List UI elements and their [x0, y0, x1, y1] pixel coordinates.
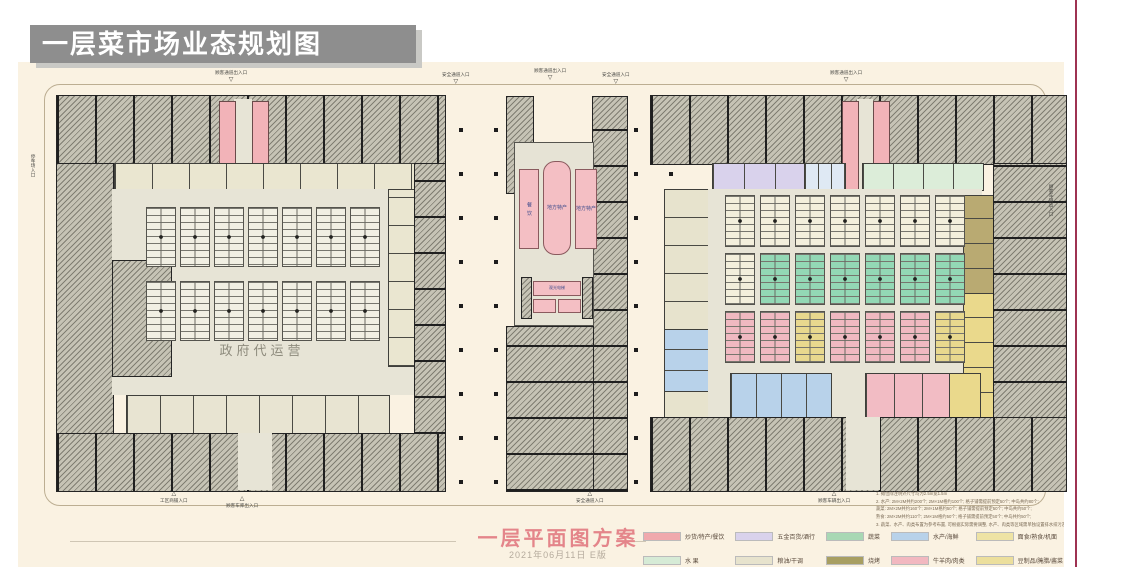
entrance-marker: △顾客车库出入口 — [226, 495, 258, 509]
stall-grid — [900, 253, 930, 305]
entrance-marker: 顾客通道出入口▽ — [215, 70, 247, 84]
stall-grid — [316, 281, 346, 341]
stall-grid — [830, 253, 860, 305]
stall-grid — [865, 311, 895, 363]
stall-grid — [935, 253, 965, 305]
legend-item: 豆制品/腌腊/酱菜 — [976, 556, 1063, 564]
entrance-triangle-icon: ▽ — [442, 78, 470, 86]
entrance-triangle-icon: ▽ — [534, 74, 566, 82]
stall-grid — [248, 207, 278, 267]
legend-item: 面食/熟食/机面 — [976, 532, 1063, 540]
zone-local-specialty-right: 地方特产 — [575, 169, 597, 249]
stall-grid — [725, 253, 755, 305]
legend-item: 粮油/干调 — [735, 556, 815, 564]
stall-grid — [146, 207, 176, 267]
legend-label: 五金百货/酒行 — [777, 532, 815, 541]
entrance-marker: 顾客通道出入口▽ — [534, 68, 566, 82]
zone-seafood-column — [664, 329, 710, 393]
stall-grid — [282, 207, 312, 267]
legend-label: 蔬菜 — [868, 532, 880, 541]
entrance-marker: 安全通道入口▽ — [602, 72, 630, 86]
escalator-icon — [582, 277, 593, 319]
note-line: 1. 摊位除注明外尺寸均为2.5m宽1.5m — [876, 490, 1064, 498]
stall-grid — [795, 311, 825, 363]
stall-grid — [316, 207, 346, 267]
legend-swatch — [735, 556, 773, 565]
zone-local-specialty-center: 地方特产 — [543, 161, 571, 255]
exit-corridor — [238, 433, 272, 490]
stall-grid — [865, 195, 895, 247]
shop-row — [114, 163, 416, 191]
escalator-icon — [521, 277, 532, 319]
stall-grid — [935, 195, 965, 247]
entrance-triangle-icon: ▽ — [215, 76, 247, 84]
legend-column: 五金百货/酒行粮油/干调 — [735, 532, 815, 564]
stall-grid — [248, 281, 278, 341]
stall-grid — [900, 195, 930, 247]
legend-item: 水产/海鲜 — [891, 532, 965, 540]
legend-label: 豆制品/腌腊/酱菜 — [1018, 556, 1063, 565]
atrium-shops-bottom — [506, 326, 594, 492]
note-line: 蔬菜: 2M×2M共约160个; 2M×1M格约50个; 格子铺需提前预定50个… — [876, 505, 1064, 513]
shop-column-right — [388, 189, 416, 367]
zone-small-shops — [804, 163, 846, 191]
legend-item: 五金百货/酒行 — [735, 532, 815, 540]
footer-rule-left — [70, 541, 456, 542]
zone-misc-column — [664, 391, 710, 419]
sightseeing-elevator: 观光电梯 — [533, 281, 581, 296]
stall-grid — [725, 195, 755, 247]
legend-item: 牛羊肉/肉类 — [891, 556, 965, 564]
legend-swatch — [735, 532, 773, 541]
legend-label: 粮油/干调 — [777, 556, 803, 565]
entrance-marker: 安全通道入口▽ — [442, 72, 470, 86]
entrance-triangle-icon: ▽ — [602, 78, 630, 86]
stall-grid — [760, 253, 790, 305]
entrance-marker-side: 顾客车辆出入口 — [1048, 184, 1054, 216]
legend-label: 面食/熟食/机面 — [1018, 532, 1057, 541]
entrance-marker: △安全通道入口 — [576, 490, 604, 504]
stall-grid — [350, 207, 380, 267]
legend-item: 蔬菜 — [826, 532, 880, 540]
zone-hardware-shops — [712, 163, 806, 191]
shop-row-bottom — [126, 395, 390, 435]
legend-column: 水产/海鲜牛羊肉/肉类 — [891, 532, 965, 564]
stall-grid — [725, 311, 755, 363]
stall-grid — [830, 311, 860, 363]
legend-label: 牛羊肉/肉类 — [933, 556, 965, 565]
entrance-triangle-icon: △ — [160, 490, 188, 498]
legend-swatch — [826, 556, 864, 565]
stall-grid — [830, 195, 860, 247]
legend-swatch — [826, 532, 864, 541]
atrium-shops-right — [592, 96, 628, 492]
legend-label: 炒货/特产/餐饮 — [685, 532, 724, 541]
slide: 政府代运营 餐 饮 地方特产 地方特产 观光电梯 — [0, 0, 1134, 567]
legend-swatch — [891, 532, 929, 541]
stall-grid — [146, 281, 176, 341]
legend-item: 水 果 — [643, 556, 724, 564]
entrance-marker-side: 停车场入口 — [30, 154, 36, 177]
zone-fruit-shops — [862, 163, 984, 191]
plan-paper: 政府代运营 餐 饮 地方特产 地方特产 观光电梯 — [18, 62, 1064, 567]
legend-column: 炒货/特产/餐饮水 果 — [643, 532, 724, 564]
legend: 炒货/特产/餐饮水 果五金百货/酒行粮油/干调蔬菜烧烤水产/海鲜牛羊肉/肉类面食… — [643, 532, 1063, 564]
stall-grid — [214, 207, 244, 267]
stall-grid — [760, 311, 790, 363]
legend-swatch — [643, 556, 681, 565]
perimeter-shops-right — [414, 163, 446, 435]
entrance-marker: 顾客通道出入口▽ — [830, 70, 862, 84]
left-building: 政府代运营 — [56, 95, 444, 490]
entrance-marker: △顾客车辆出入口 — [818, 490, 850, 504]
legend-swatch — [976, 556, 1014, 565]
stall-grid — [935, 311, 965, 363]
legend-item: 炒货/特产/餐饮 — [643, 532, 724, 540]
legend-label: 水 果 — [685, 556, 699, 565]
elevator-cab — [533, 299, 556, 313]
entrance-triangle-icon: △ — [226, 495, 258, 503]
legend-item: 烧烤 — [826, 556, 880, 564]
exit-corridor — [846, 417, 880, 490]
stall-grid — [795, 253, 825, 305]
corridor-columns — [459, 98, 463, 484]
legend-label: 水产/海鲜 — [933, 532, 959, 541]
stall-grid — [795, 195, 825, 247]
notes-block: 1. 摊位除注明外尺寸均为2.5m宽1.5m2. 水产: 2M×2M共约200个… — [876, 490, 1064, 530]
plan-title: 一层平面图方案 — [470, 522, 646, 551]
right-building — [650, 95, 1065, 490]
escalator-block: 观光电梯 — [521, 277, 591, 317]
page-title: 一层菜市场业态规划图 — [30, 25, 416, 63]
atrium-lobby: 餐 饮 地方特产 地方特产 观光电梯 — [514, 142, 594, 326]
government-operation-label: 政府代运营 — [152, 340, 372, 359]
note-line: 3. 蔬菜、水产、肉类布置为参考布置, 可根据实际需要调整, 水产、肉类等区域需… — [876, 521, 1064, 529]
entrance-triangle-icon: △ — [818, 490, 850, 498]
legend-column: 面食/熟食/机面豆制品/腌腊/酱菜 — [976, 532, 1063, 564]
stall-grid — [214, 281, 244, 341]
stall-grid — [350, 281, 380, 341]
stall-grid — [865, 253, 895, 305]
stall-grid — [900, 311, 930, 363]
accent-line — [1075, 0, 1077, 567]
zone-noodle-shop — [949, 373, 981, 419]
legend-swatch — [891, 556, 929, 565]
zone-bbq-column — [963, 195, 995, 295]
zone-seafood-shops — [730, 373, 832, 419]
legend-swatch — [976, 532, 1014, 541]
stall-grid — [282, 281, 312, 341]
stall-grid — [180, 281, 210, 341]
center-atrium: 餐 饮 地方特产 地方特产 观光电梯 — [488, 88, 643, 490]
zone-grain-oil-column — [664, 189, 710, 331]
entrance-marker: △工区商铺入口 — [160, 490, 188, 504]
legend-swatch — [643, 532, 681, 541]
note-line: 2. 水产: 2M×2M共约200个; 2M×1M格约100个; 格子铺需提前预… — [876, 498, 1064, 506]
zone-dining: 餐 饮 — [519, 169, 539, 249]
plan-date: 2021年06月11日 E版 — [470, 548, 646, 561]
stall-grid — [180, 207, 210, 267]
legend-label: 烧烤 — [868, 556, 880, 565]
note-line: 熟食: 2M×2M共约110个; 2M×1M格约50个; 格子铺需提前预定50个… — [876, 513, 1064, 521]
legend-column: 蔬菜烧烤 — [826, 532, 880, 564]
stall-grid — [760, 195, 790, 247]
elevator-cab — [558, 299, 581, 313]
zone-meat-shops — [865, 373, 951, 419]
entrance-triangle-icon: ▽ — [830, 76, 862, 84]
entrance-triangle-icon: △ — [576, 490, 604, 498]
